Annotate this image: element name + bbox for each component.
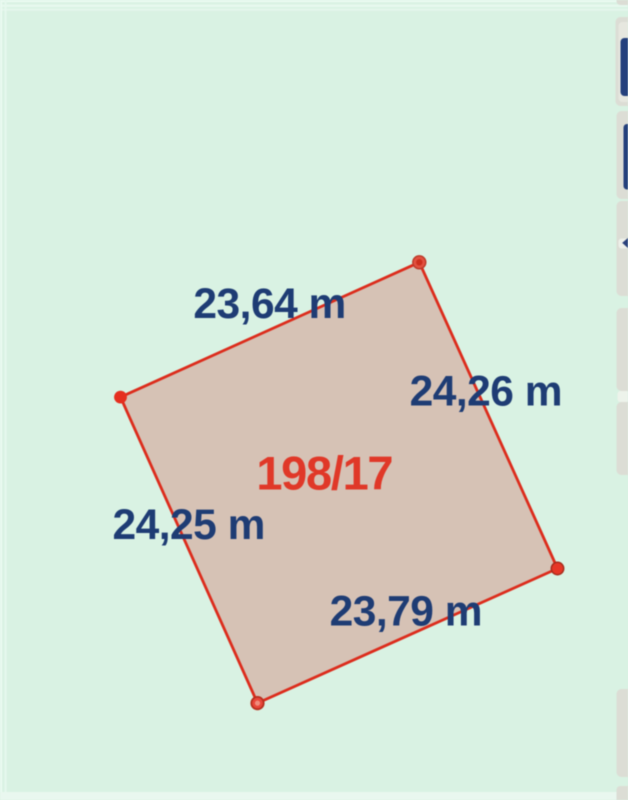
svg-text:198/17: 198/17 <box>256 447 392 500</box>
svg-text:24,26 m: 24,26 m <box>410 369 562 416</box>
svg-text:23,79 m: 23,79 m <box>330 589 482 636</box>
svg-text:24,25 m: 24,25 m <box>112 502 264 549</box>
svg-text:23,64 m: 23,64 m <box>193 281 345 328</box>
